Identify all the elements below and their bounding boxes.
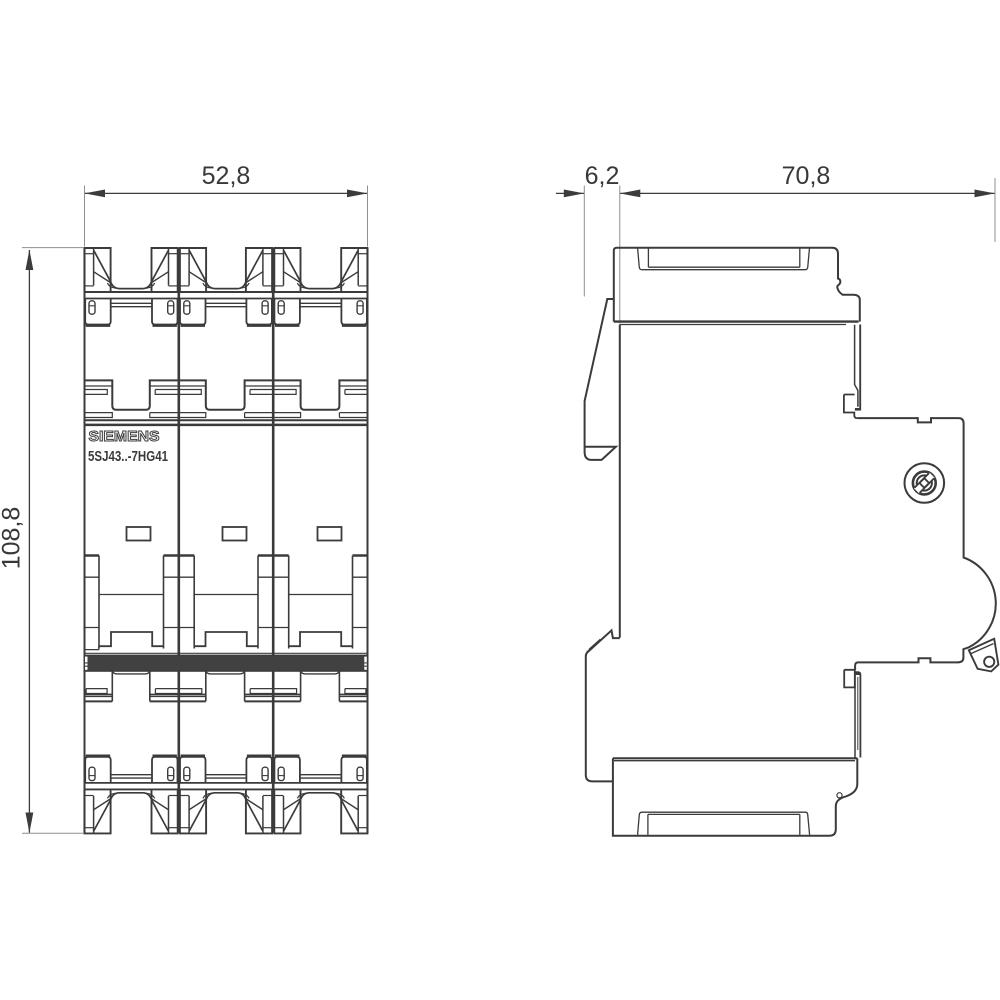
- svg-text:6,2: 6,2: [585, 162, 620, 190]
- svg-text:70,8: 70,8: [782, 162, 831, 190]
- svg-text:SIEMENS: SIEMENS: [89, 429, 160, 445]
- svg-text:108,8: 108,8: [0, 507, 26, 570]
- svg-text:52,8: 52,8: [202, 162, 251, 190]
- svg-text:5SJ43..-7HG41: 5SJ43..-7HG41: [88, 449, 168, 465]
